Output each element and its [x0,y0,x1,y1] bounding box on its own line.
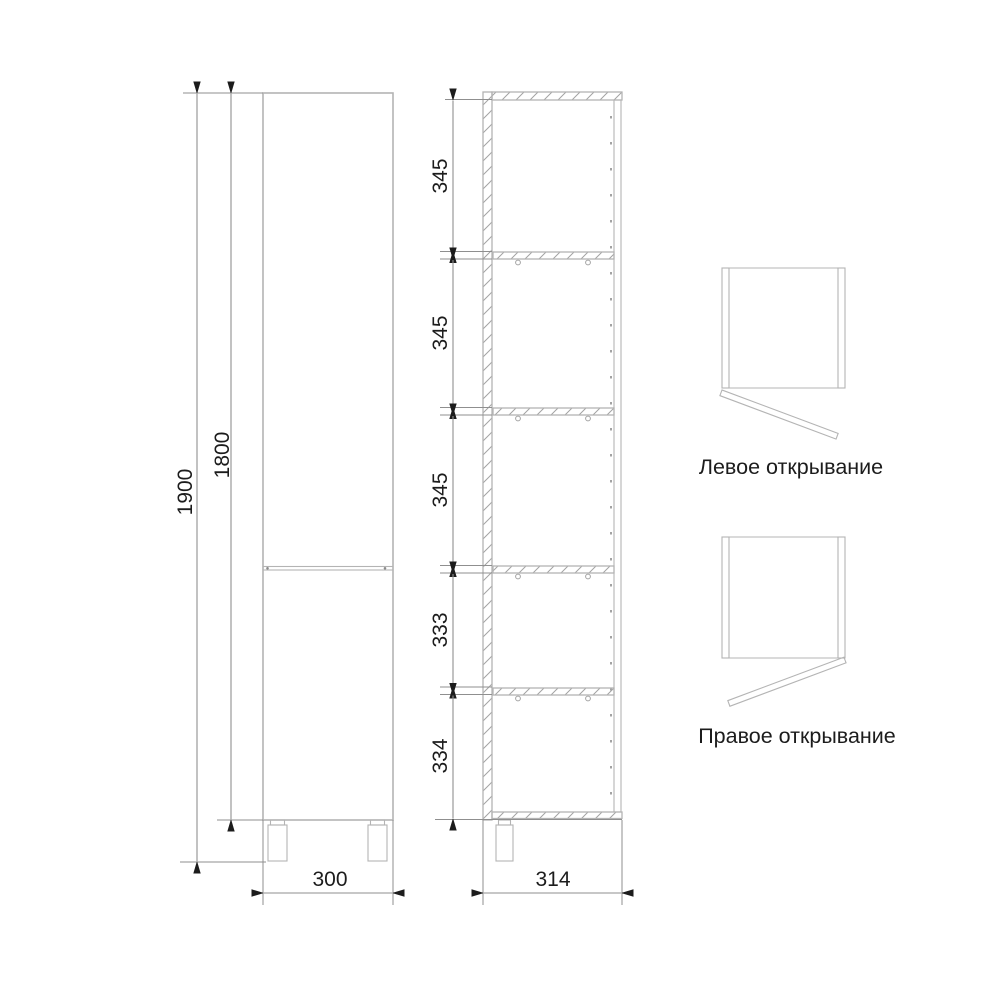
dim-label-spacing-1: 345 [429,158,452,193]
section-bottom-panel [492,812,622,819]
dim-label-width: 300 [312,868,347,891]
shelf-fitting-hole [516,696,521,701]
foot-body [268,825,287,861]
section-right-panel [614,100,621,812]
dim-label-height-body: 1800 [211,432,234,479]
dim-label-spacing-2: 345 [429,315,452,350]
shelf-fitting-hole [586,260,591,265]
cabinet-front-outline [263,93,393,820]
front-foot-left [268,820,287,861]
right-opening-label: Правое открывание [698,724,896,748]
front-view-dimensions: 1900 1800 300 [174,93,393,905]
divider-end-mark [384,567,387,570]
front-foot-right [368,820,387,861]
drawing-canvas: 1900 1800 300 [0,0,1000,1000]
shelf-fitting-hole [516,416,521,421]
shelf-fitting-hole [586,696,591,701]
section-view-dimensions: 345 345 345 333 334 314 [429,100,622,906]
left-opening-label: Левое открывание [699,455,883,479]
section-shelf-1 [493,252,614,259]
technical-drawing-page: 1900 1800 300 [0,0,1000,1000]
shelf-fitting-hole [516,260,521,265]
cabinet-top-view-left-side [722,268,729,388]
cabinet-top-view-left-side [722,537,729,658]
section-top-panel [492,92,622,100]
dim-label-spacing-4: 333 [429,612,452,647]
dim-label-spacing-5: 334 [429,738,452,773]
door-divider [263,567,393,571]
dim-label-spacing-3: 345 [429,472,452,507]
divider-end-mark [266,567,269,570]
shelf-fitting-hole [586,574,591,579]
open-door-leaf [720,390,838,439]
section-shelf-4 [493,688,614,695]
cabinet-top-view-right-side [838,268,845,388]
dim-label-depth: 314 [535,868,570,891]
foot-neck [499,820,511,825]
section-shelf-3 [493,566,614,573]
front-view [263,93,393,861]
section-shelf-2 [493,408,614,415]
shelf-fitting-hole [516,574,521,579]
section-left-panel [483,92,492,820]
shelf-fitting-hole [586,416,591,421]
section-view [483,92,622,861]
left-opening-diagram: Левое открывание [699,268,883,479]
open-door-leaf [728,657,846,706]
cabinet-top-view-right-side [838,537,845,658]
foot-body [368,825,387,861]
section-foot [496,820,513,861]
dim-label-height-total: 1900 [174,469,197,516]
foot-body [496,825,513,861]
right-opening-diagram: Правое открывание [698,537,896,748]
